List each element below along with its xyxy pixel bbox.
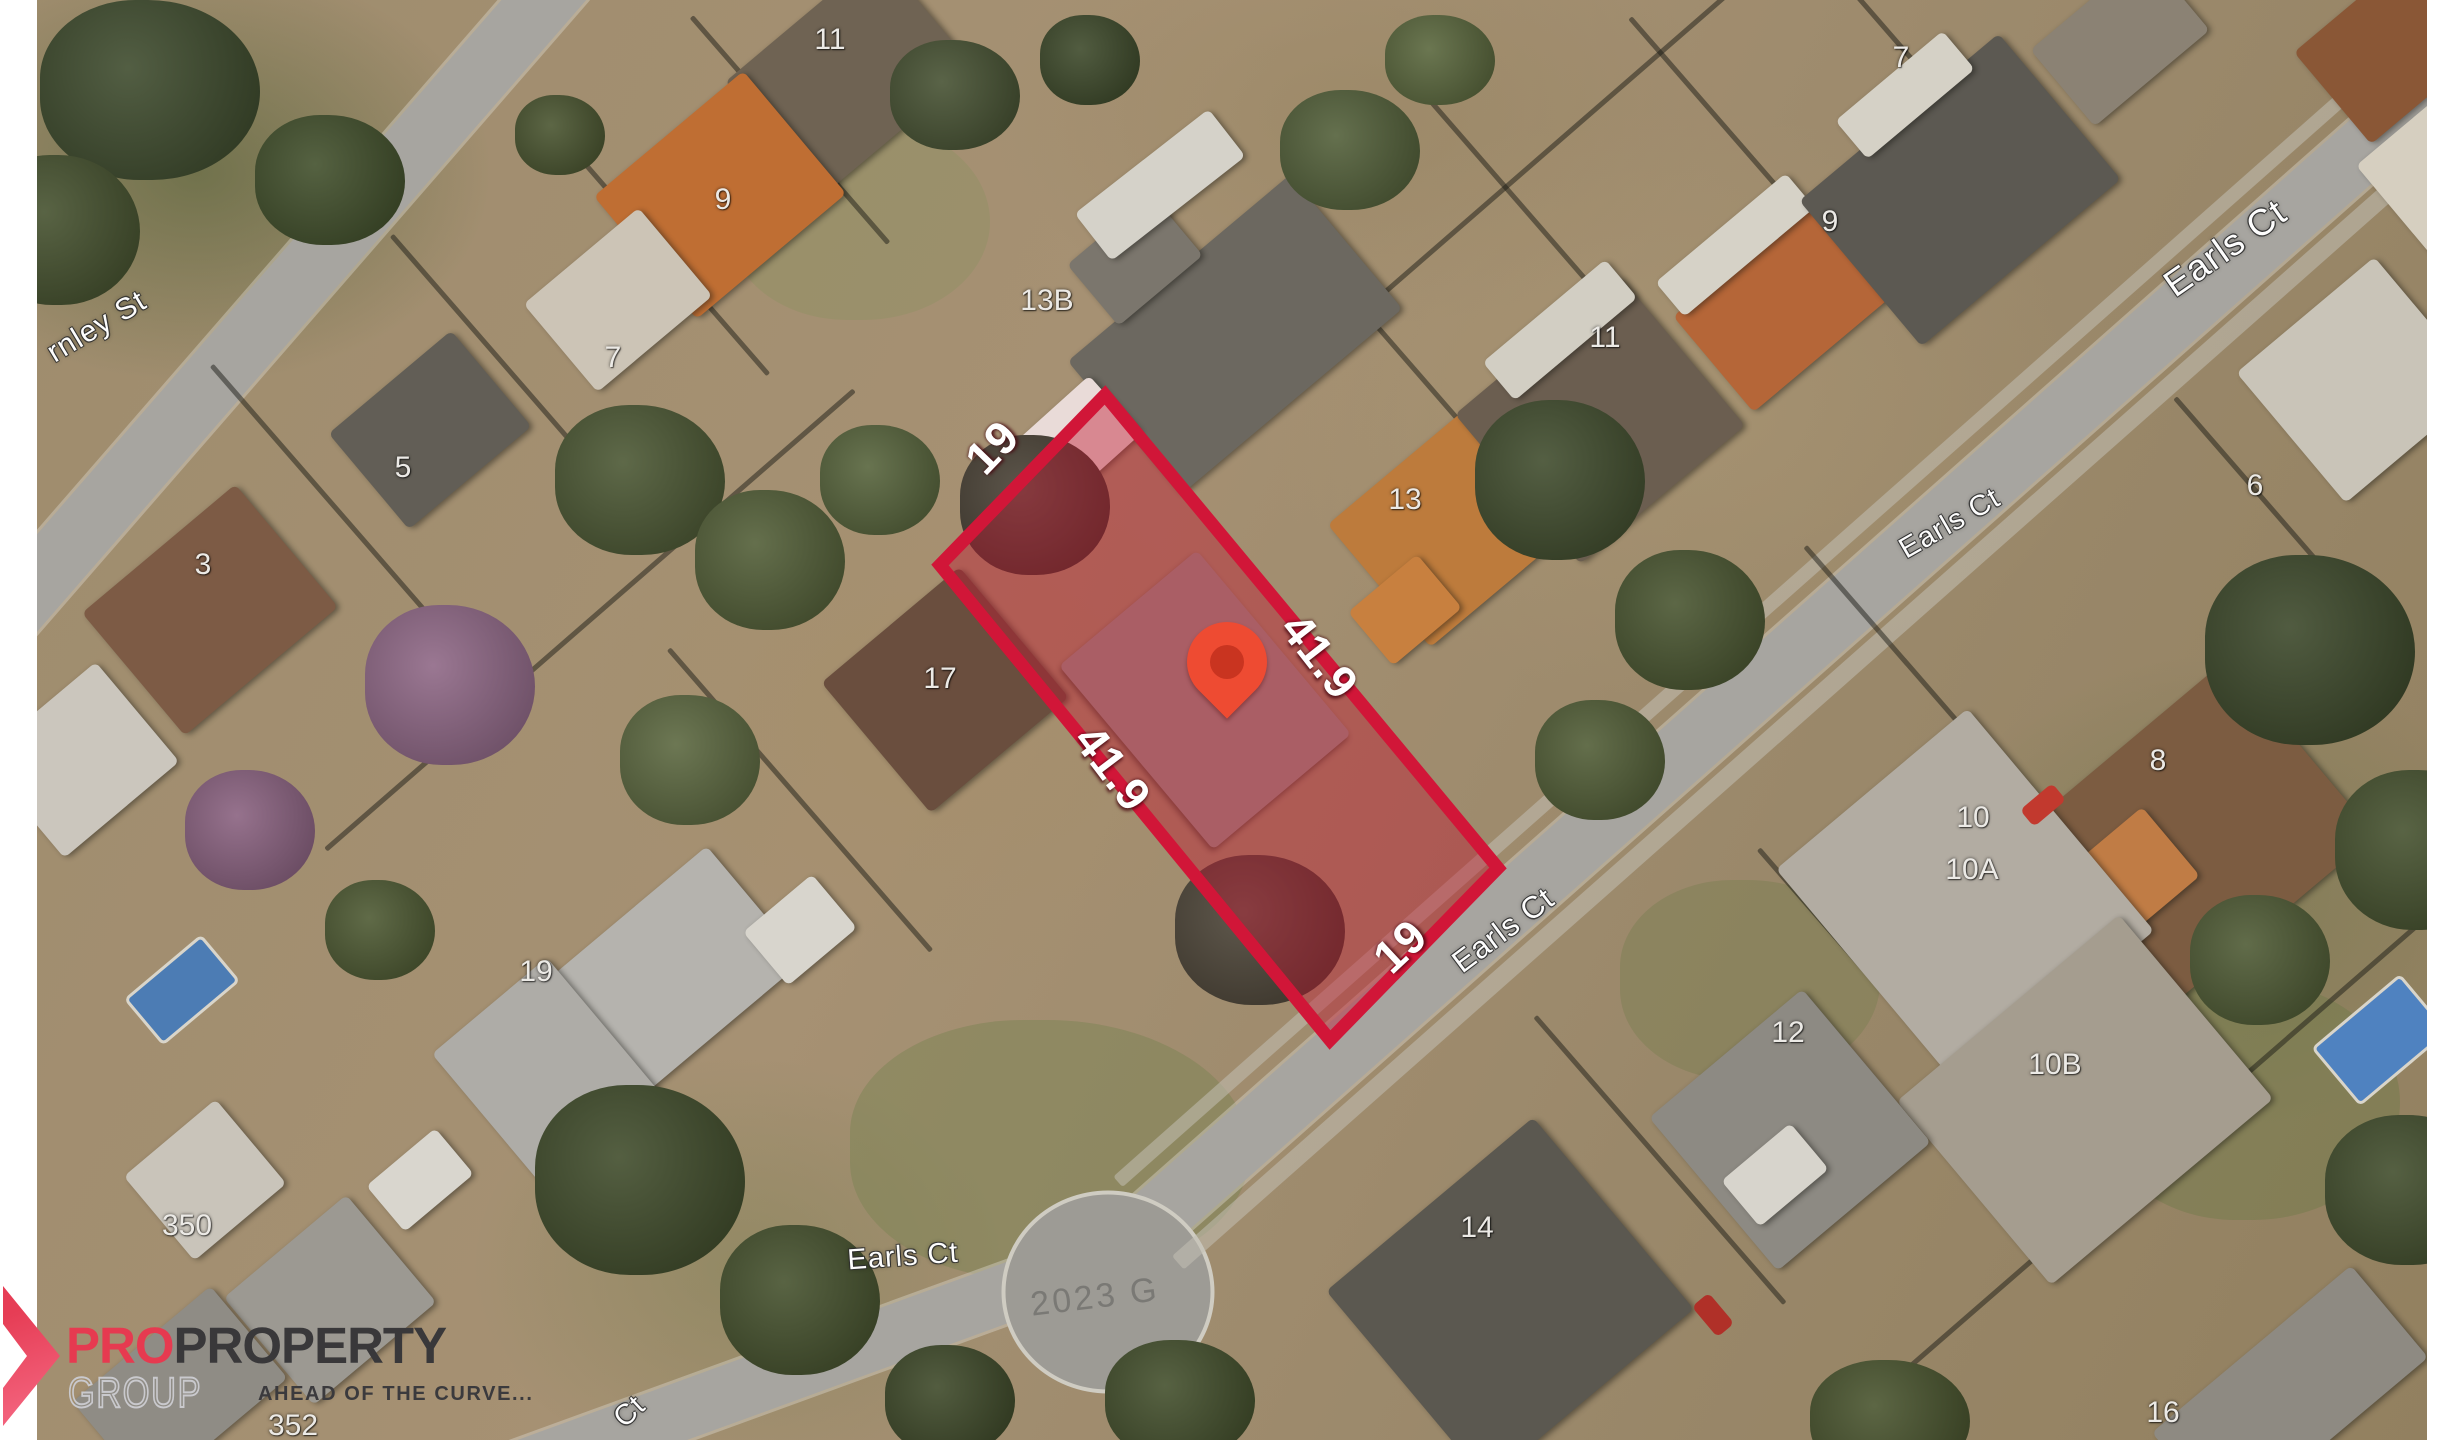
right-margin bbox=[2427, 0, 2464, 1440]
house-number-label: 9 bbox=[1822, 207, 1839, 237]
house-number-label: 7 bbox=[605, 343, 622, 373]
left-margin bbox=[0, 0, 37, 1440]
house-number-label: 12 bbox=[1771, 1018, 1804, 1048]
map-labels-layer: rnley StEarls CtEarls CtEarls CtEarls Ct… bbox=[0, 0, 2464, 1440]
street-label: Ct bbox=[609, 1391, 651, 1433]
house-number-label: 14 bbox=[1460, 1213, 1493, 1243]
house-number-label: 16 bbox=[2146, 1398, 2179, 1428]
house-number-label: 13B bbox=[1020, 286, 1073, 316]
house-number-label: 11 bbox=[1589, 323, 1620, 353]
lot-dimension-label: 41.9 bbox=[1066, 717, 1159, 819]
house-number-label: 19 bbox=[519, 957, 552, 987]
house-number-label: 10 bbox=[1956, 803, 1989, 833]
house-number-label: 3 bbox=[195, 550, 212, 580]
logo-tagline: AHEAD OF THE CURVE... bbox=[258, 1383, 533, 1406]
lot-dimension-label: 19 bbox=[957, 412, 1027, 482]
house-number-label: 6 bbox=[2247, 471, 2264, 501]
logo-wordmark: PROPROPERTY bbox=[66, 1320, 446, 1371]
street-label: Earls Ct bbox=[1895, 484, 2006, 565]
lot-dimension-label: 19 bbox=[1365, 911, 1435, 981]
house-number-label: 5 bbox=[395, 453, 412, 483]
street-label: Earls Ct bbox=[1446, 882, 1559, 978]
house-number-label: 8 bbox=[2150, 746, 2167, 776]
house-number-label: 9 bbox=[715, 185, 732, 215]
logo-group-text: GROUP bbox=[68, 1372, 202, 1415]
house-number-label: 10A bbox=[1945, 855, 1998, 885]
logo-property-text: PROPERTY bbox=[174, 1317, 447, 1374]
street-label: rnley St bbox=[42, 286, 151, 368]
chevron-logo-icon bbox=[0, 1284, 62, 1428]
street-label: Earls Ct bbox=[2157, 193, 2293, 303]
house-number-label: 17 bbox=[923, 664, 956, 694]
house-number-label: 13 bbox=[1388, 485, 1421, 515]
logo-pro-text: PRO bbox=[66, 1317, 174, 1374]
house-number-label: 350 bbox=[162, 1211, 212, 1241]
lot-dimension-label: 41.9 bbox=[1273, 605, 1367, 707]
propro-logo: PROPROPERTY GROUP AHEAD OF THE CURVE... bbox=[0, 1270, 560, 1440]
property-aerial-map: rnley StEarls CtEarls CtEarls CtEarls Ct… bbox=[0, 0, 2464, 1440]
house-number-label: 11 bbox=[814, 25, 845, 55]
house-number-label: 10B bbox=[2028, 1050, 2081, 1080]
street-label: Earls Ct bbox=[847, 1239, 960, 1276]
house-number-label: 7 bbox=[1893, 43, 1910, 73]
